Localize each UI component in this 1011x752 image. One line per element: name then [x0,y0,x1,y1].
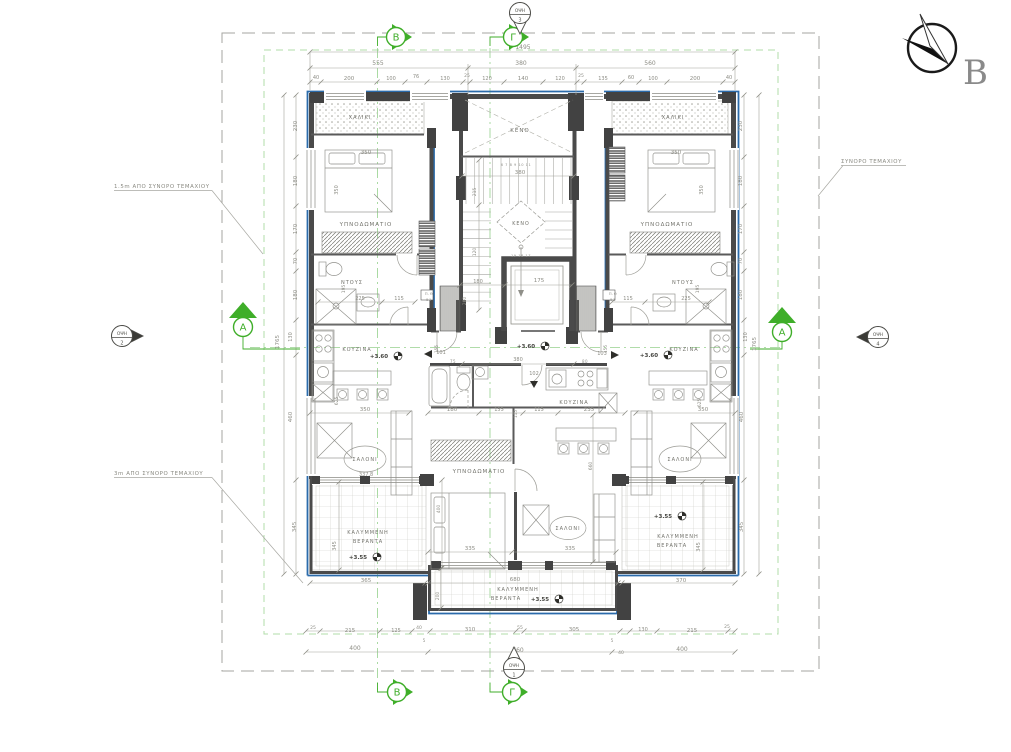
grid-marker-B: B [387,24,413,50]
room-label: ΧΑΛΙΚΙ [349,115,372,121]
dim-label: 75 [450,359,456,364]
room-label: ΚΟΥΖΙΝΑ [342,347,371,353]
dim-label: 560 [644,60,656,67]
compass-needle-light [920,14,948,64]
dim-label: 200 [690,76,701,82]
level-label: +3.60 [517,344,535,350]
dim-label: 225 [681,296,691,302]
room-label: ΚΟΥΖΙΝΑ [669,347,698,353]
room-label: ΚΑΛΥΜΜΕΝΗ [347,530,388,536]
room-label: ΣΑΛΟΝΙ [555,526,580,532]
room-label: ΥΠΝΟΔΩΜΑΤΙΟ [640,222,694,228]
dim-label: 380 [515,60,527,67]
dim-label: 51 [426,297,432,302]
dim-label: 337.8 [359,472,373,478]
dim-label: 345 [332,541,338,551]
view-marker-number: 2 [120,341,123,347]
room-label: ΣΑΛΟΝΙ [667,457,692,463]
dim-label: 25 [578,73,584,79]
dim-label: 235 [584,407,595,413]
dim-label: 40 [618,650,624,656]
dim-label: 555 [372,60,384,67]
view-marker-label: ΟΨΗ [515,8,525,14]
dim-label: 305 [569,627,580,633]
dim-label: 1765 [275,335,281,349]
dim-label: 215 [687,628,698,634]
dim-label: 365 [361,578,372,584]
dim-label: 195 [695,285,701,294]
dim-label: 135 [598,76,608,82]
dim-label: Π.Θ [609,291,618,296]
room-label: ΚΑΛΥΜΜΕΝΗ [497,587,538,593]
setback-3m-label: 3m ΑΠΟ ΣΥΝΟΡΟ ΤΕΜΑΧΙΟΥ [114,471,203,477]
dim-label: 400 [349,645,361,652]
dim-label: 102 [529,371,539,377]
dim-label: 350 [671,150,682,156]
grid-marker-letter: B [393,33,400,44]
dim-label: 100 [648,76,658,82]
dim-label: 180 [293,289,299,300]
level-label: +3.55 [349,555,367,561]
dim-label: 345 [292,521,298,532]
dim-label: 103 [597,351,607,357]
dim-label: 155 [494,407,504,413]
dim-label: 370 [676,578,687,584]
dim-label: 76 [413,74,419,80]
dim-label: 400 [676,646,688,653]
north-arrow-compass: B [902,14,988,93]
view-marker-number: 4 [876,342,879,348]
dim-label: 215 [345,628,356,634]
setback-1-5m-label: 1.5m ΑΠΟ ΣΥΝΟΡΟ ΤΕΜΑΧΙΟΥ [114,184,210,190]
dim-label: 625 [697,399,703,408]
room-label: ΚΟΥΖΙΝΑ [559,400,588,406]
grid-marker-A: A [768,307,796,342]
room-label: ΧΑΛΙΚΙ [662,115,685,121]
dim-label: 60 [628,75,634,81]
view-marker-number: 3 [518,18,521,24]
dim-label: 40 [726,75,732,81]
level-label: +3.55 [531,597,549,603]
grid-marker-letter: A [240,323,247,334]
room-label: ΒΕΡΑΝΤΑ [353,539,383,545]
dim-label: 180 [738,175,744,186]
room-label: ΒΕΡΑΝΤΑ [657,543,687,549]
dim-label: 19 18 17 [511,254,531,258]
door-direction-arrows [424,350,619,388]
dim-label: 180 [738,289,744,300]
dim-label: 625 [334,397,340,406]
dim-label: 140 [518,76,529,82]
view-marker-label: ΟΨΗ [873,332,883,338]
view-marker-label: ΟΨΗ [117,331,127,337]
grid-marker-Γ: Γ [503,679,529,705]
dim-label: 225 [355,296,365,302]
dim-label: 335 [465,546,476,552]
room-label: ΚΕΝΟ [510,128,530,134]
dim-label: 115 [513,410,518,418]
dim-label: 130 [743,332,749,342]
room-label: ΒΕΡΑΝΤΑ [491,596,521,602]
dim-label: 55 [517,625,523,631]
view-marker-label: ΟΨΗ [509,663,519,669]
dim-label: 460 [739,411,745,422]
plot-boundary-label: ΣΥΝΟΡΟ ΤΕΜΑΧΙΟΥ [841,159,902,165]
dim-label: 120 [555,76,565,82]
dim-label: 115 [623,296,633,302]
room-label: ΣΑΛΟΝΙ [352,457,377,463]
dim-label: 180 [473,279,483,285]
dim-label: 170 [738,223,744,234]
dim-label: 170 [293,223,299,234]
dim-label: 5 [611,638,614,643]
room-label: ΥΠΝΟΔΩΜΑΤΙΟ [452,469,506,475]
dim-label: 380 [515,170,526,176]
dim-label: 350 [334,185,340,195]
drawing-sheet: 1495555380560402001007613025120140120251… [0,0,1011,752]
compass-north-letter: B [963,53,988,93]
level-label: +3.55 [654,514,672,520]
dim-label: 200 [435,592,441,601]
dim-label: 155 [434,345,439,353]
dim-label: 195 [341,285,347,294]
dim-label: 175 [534,278,545,284]
dim-label: 70 [738,258,744,264]
dim-label: 130 [440,76,450,82]
dim-label: 6 7 8 9 10 11 [501,163,532,167]
level-label: +3.60 [370,354,388,360]
room-label: ΚΑΛΥΜΜΕΝΗ [657,534,698,540]
grid-marker-letter: B [394,688,401,699]
level-label: +3.60 [640,353,658,359]
dim-label: 130 [288,332,294,342]
dim-label: 125 [391,628,401,634]
dim-label: 350 [699,185,705,195]
view-marker-number: 1 [512,673,515,679]
elevator [504,259,572,331]
dim-label: 350 [360,407,371,413]
dim-label: 51 [610,297,616,302]
dim-label: 200 [462,297,468,306]
dim-label: 660 [588,462,594,471]
dim-label: 400 [436,505,442,514]
dim-label: 350 [698,407,709,413]
dim-label: 345 [696,542,702,552]
dim-label: 345 [739,521,745,532]
grid-marker-B: B [388,679,414,705]
dim-label: 80 [582,359,588,364]
grid-marker-letter: Γ [509,688,515,699]
dim-label: 350 [361,150,372,156]
dim-label: 5 [423,638,426,643]
dim-label: 25 [464,73,470,79]
dim-label: 115 [394,296,404,302]
dim-label: 180 [293,175,299,186]
dim-label: Π.Θ [425,291,434,296]
dim-label: 25 [310,625,316,631]
dim-label: 335 [565,546,576,552]
dim-label: 215 [472,188,478,197]
dim-label: 380 [513,357,523,363]
room-label: ΚΕΝΟ [512,221,530,227]
dim-label: 200 [344,76,355,82]
dim-label: 230 [293,120,299,131]
dim-label: 115 [534,407,544,413]
dim-label: 230 [738,120,744,131]
dim-label: 120 [472,248,478,257]
floor-plan-drawing: 1495555380560402001007613025120140120251… [0,0,1011,752]
grid-marker-letter: A [779,328,786,339]
dim-label: 120 [482,76,492,82]
dim-label: 1765 [752,337,758,351]
dim-label: 130 [638,627,648,633]
dim-label: 180 [447,407,458,413]
dim-label: 460 [288,411,294,422]
dim-label: 40 [313,75,319,81]
dim-label: 680 [510,577,521,583]
room-label: ΥΠΝΟΔΩΜΑΤΙΟ [339,222,393,228]
grid-marker-A: A [229,302,257,337]
dim-label: 310 [465,627,476,633]
view-marker-2: ΟΨΗ2 [112,326,144,347]
dim-label: 40 [416,625,422,631]
dim-label: 70 [293,258,299,264]
view-marker-4: ΟΨΗ4 [857,327,889,348]
room-label: ΝΤΟΥΣ [672,280,694,286]
grid-marker-letter: Γ [510,33,516,44]
dim-label: 100 [386,76,396,82]
dim-label: 25 [724,624,730,630]
